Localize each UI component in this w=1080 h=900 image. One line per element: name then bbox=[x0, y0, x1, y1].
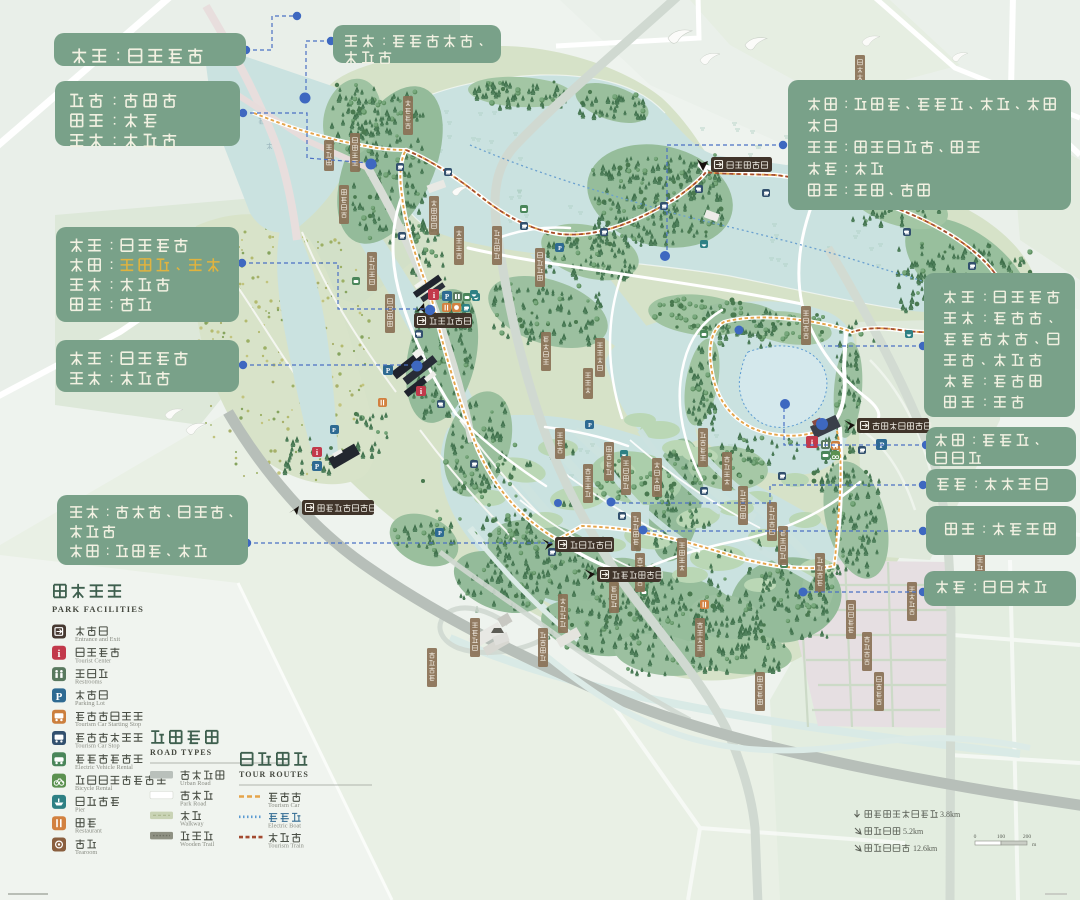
svg-text:P: P bbox=[445, 293, 450, 301]
svg-text:P: P bbox=[588, 423, 592, 429]
svg-text:Tearoom: Tearoom bbox=[75, 849, 97, 856]
svg-text:0: 0 bbox=[974, 834, 977, 840]
svg-text:Tourism Car Stop: Tourism Car Stop bbox=[75, 743, 120, 750]
svg-text:Restaurant: Restaurant bbox=[75, 828, 102, 835]
svg-text:TOUR ROUTES: TOUR ROUTES bbox=[239, 770, 309, 779]
svg-text:PARK FACILITIES: PARK FACILITIES bbox=[52, 604, 144, 614]
svg-text:P: P bbox=[386, 367, 391, 375]
svg-text:Parking Lot: Parking Lot bbox=[75, 700, 105, 707]
svg-text:P: P bbox=[332, 428, 336, 434]
svg-text:Restrooms: Restrooms bbox=[75, 679, 102, 686]
svg-text:5.2km: 5.2km bbox=[903, 827, 924, 836]
svg-text:Tourism Train: Tourism Train bbox=[268, 843, 305, 850]
svg-text:Wooden Trail: Wooden Trail bbox=[180, 841, 215, 848]
svg-text:Bicycle Rental: Bicycle Rental bbox=[75, 785, 112, 792]
svg-text:12.6km: 12.6km bbox=[913, 844, 938, 853]
svg-text:3.8km: 3.8km bbox=[940, 810, 961, 819]
svg-text:ROAD TYPES: ROAD TYPES bbox=[150, 748, 212, 757]
svg-text:i: i bbox=[58, 649, 61, 660]
svg-text:m: m bbox=[1032, 842, 1037, 848]
svg-text:Electric Vehicle Rental: Electric Vehicle Rental bbox=[75, 764, 133, 771]
svg-text:200: 200 bbox=[1023, 834, 1032, 840]
svg-text:Tourism Car: Tourism Car bbox=[268, 802, 300, 809]
svg-text:Tourism Car Starting Stop: Tourism Car Starting Stop bbox=[75, 721, 141, 728]
svg-text:Electric Boat: Electric Boat bbox=[268, 822, 301, 829]
svg-text:Pier: Pier bbox=[75, 806, 86, 813]
svg-text:Urban Road: Urban Road bbox=[180, 780, 211, 787]
svg-text:P: P bbox=[315, 463, 320, 471]
svg-text:P: P bbox=[558, 246, 562, 252]
svg-text:Walkway: Walkway bbox=[180, 821, 204, 828]
svg-text:100: 100 bbox=[997, 834, 1006, 840]
svg-text:Entrance and Exit: Entrance and Exit bbox=[75, 636, 120, 643]
svg-text:P: P bbox=[56, 691, 63, 703]
svg-text:P: P bbox=[438, 531, 442, 537]
svg-text:Park Road: Park Road bbox=[180, 800, 207, 807]
svg-text:Tourist Center: Tourist Center bbox=[75, 657, 112, 664]
